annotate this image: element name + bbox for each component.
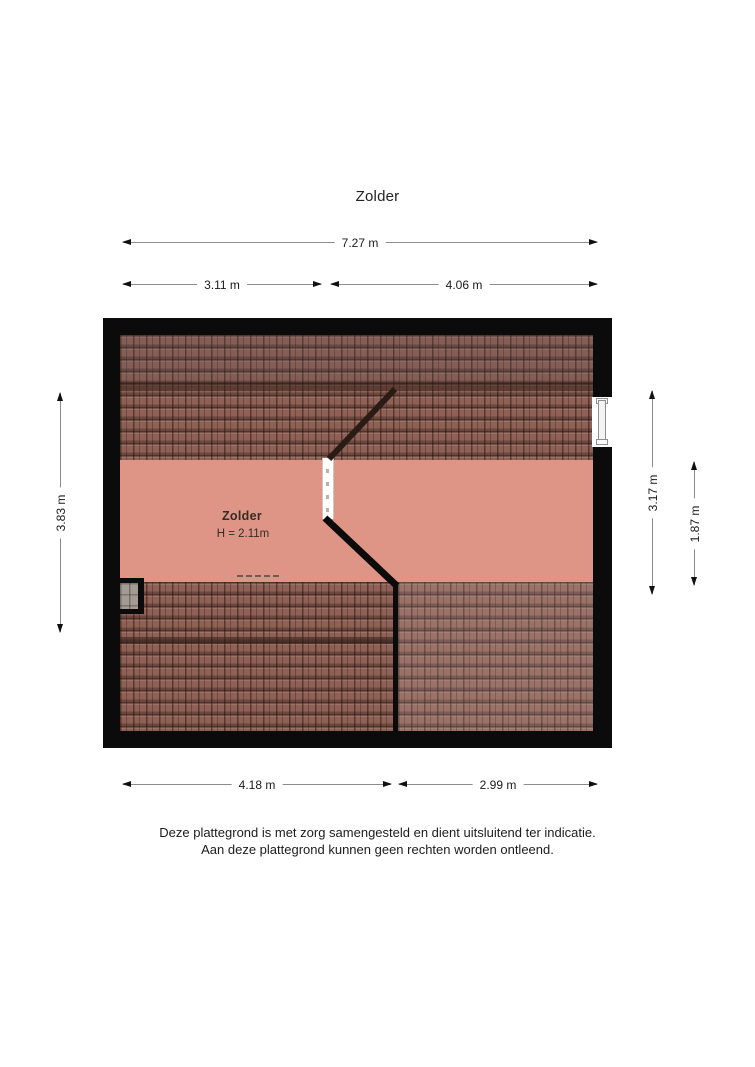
roof-bottom-right-shading xyxy=(398,582,593,731)
arrow-down-icon xyxy=(649,586,655,595)
dimension-label: 3.83 m xyxy=(54,487,68,538)
dimension-top-right: 4.06 m xyxy=(330,278,598,291)
dormer xyxy=(120,578,144,614)
window-frame-bottom xyxy=(596,439,608,445)
window xyxy=(592,397,612,447)
roof-ridge-bottom xyxy=(120,637,393,644)
arrow-left-icon xyxy=(330,281,339,287)
dimension-label: 3.11 m xyxy=(197,278,247,292)
page-title: Zolder xyxy=(0,188,755,205)
dimension-label: 4.18 m xyxy=(232,778,283,792)
arrow-right-icon xyxy=(589,281,598,287)
roof-area-bottom-left xyxy=(120,582,393,731)
arrow-up-icon xyxy=(691,461,697,470)
dimension-label: 2.99 m xyxy=(473,778,524,792)
arrow-right-icon xyxy=(383,781,392,787)
arrow-down-icon xyxy=(57,624,63,633)
dimension-bottom-right: 2.99 m xyxy=(398,778,598,791)
dimension-top-left: 3.11 m xyxy=(122,278,322,291)
dashed-marking xyxy=(237,575,279,577)
room-height-label: H = 2.11m xyxy=(217,528,270,540)
arrow-right-icon xyxy=(589,239,598,245)
disclaimer-line-1: Deze plattegrond is met zorg samengestel… xyxy=(0,824,755,841)
arrow-left-icon xyxy=(398,781,407,787)
arrow-left-icon xyxy=(122,281,131,287)
attic-floor xyxy=(120,460,593,582)
dimension-bottom-left: 4.18 m xyxy=(122,778,392,791)
stair-opening-dashes xyxy=(326,460,329,517)
arrow-left-icon xyxy=(122,239,131,245)
arrow-right-icon xyxy=(589,781,598,787)
dimension-label: 1.87 m xyxy=(688,498,702,549)
arrow-down-icon xyxy=(691,577,697,586)
disclaimer: Deze plattegrond is met zorg samengestel… xyxy=(0,824,755,858)
arrow-up-icon xyxy=(649,390,655,399)
floor-plan xyxy=(103,318,612,748)
window-glass xyxy=(598,400,606,444)
arrow-left-icon xyxy=(122,781,131,787)
room-name-label: Zolder xyxy=(222,509,262,523)
arrow-up-icon xyxy=(57,392,63,401)
stair-opening xyxy=(322,458,334,519)
roof-ridge-top xyxy=(120,382,593,391)
dimension-label: 7.27 m xyxy=(335,236,386,250)
dimension-right-inner: 1.87 m xyxy=(688,461,701,586)
disclaimer-line-2: Aan deze plattegrond kunnen geen rechten… xyxy=(0,841,755,858)
dimension-top-total: 7.27 m xyxy=(122,236,598,249)
arrow-right-icon xyxy=(313,281,322,287)
dimension-label: 4.06 m xyxy=(439,278,490,292)
dormer-interior xyxy=(120,583,138,609)
dimension-left: 3.83 m xyxy=(54,392,67,633)
roof-top-shading xyxy=(120,335,593,382)
dimension-label: 3.17 m xyxy=(646,467,660,518)
dimension-right-outer: 3.17 m xyxy=(646,390,659,595)
